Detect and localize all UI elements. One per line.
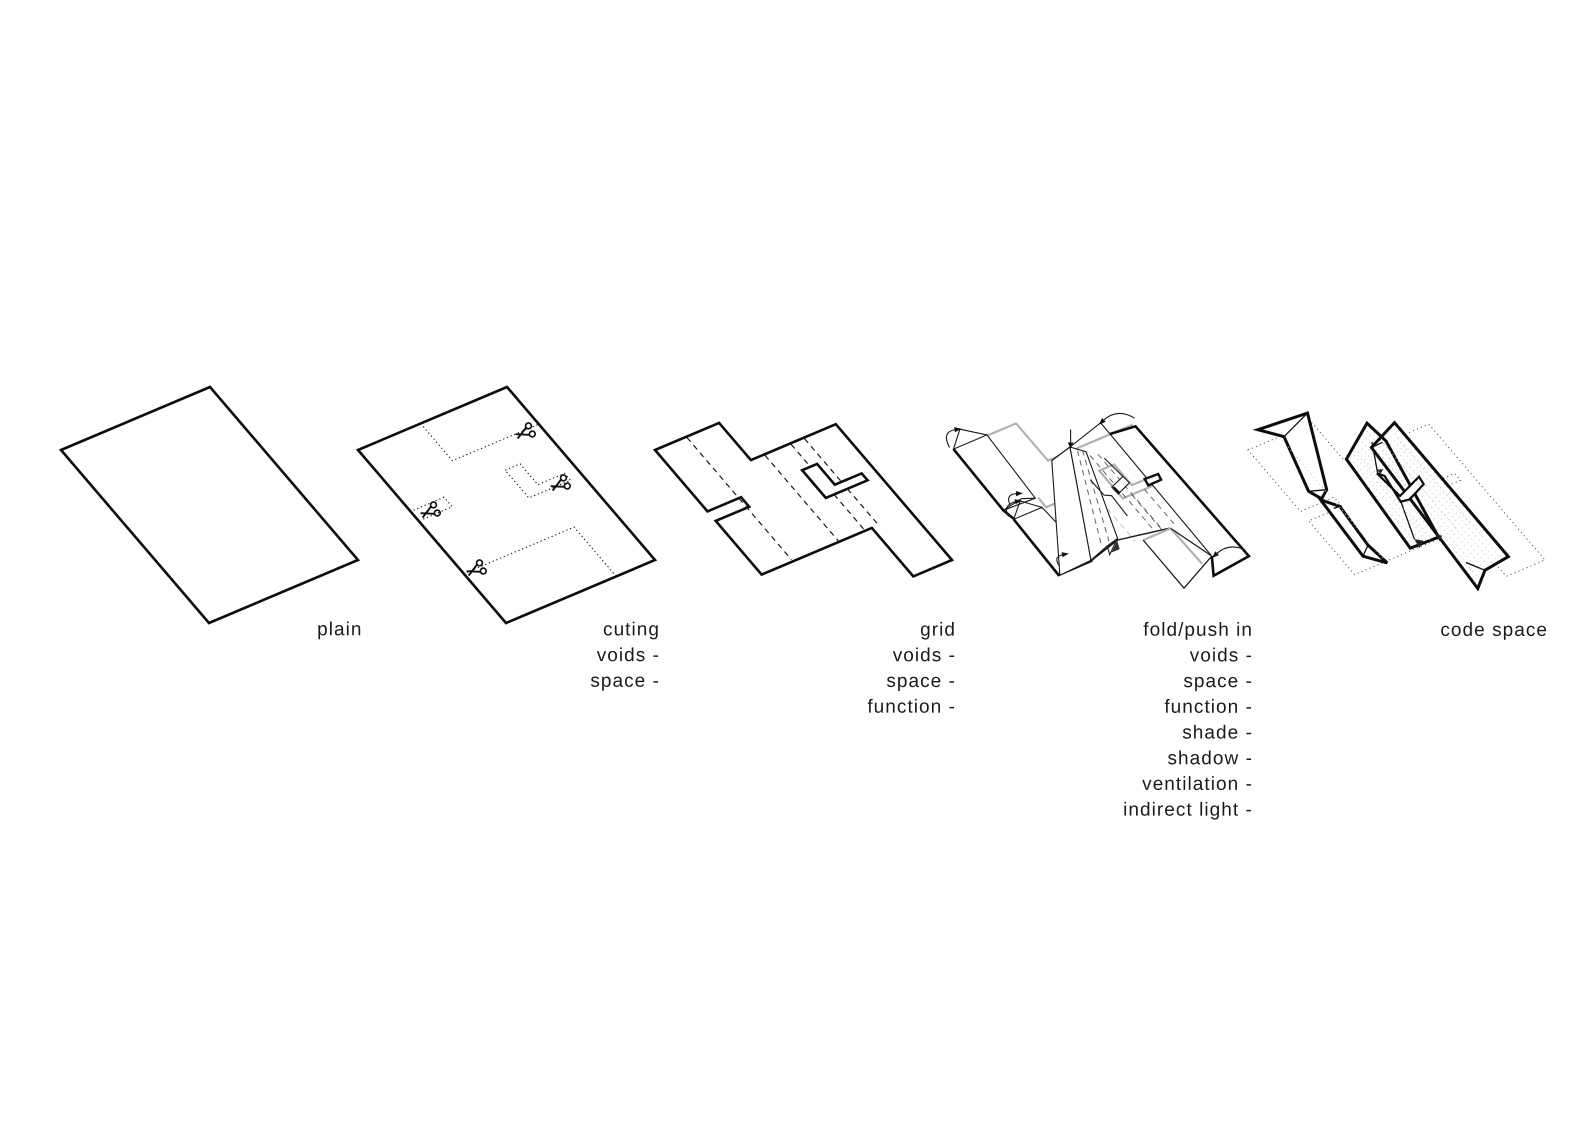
svg-text:voids -: voids - — [597, 645, 660, 666]
svg-text:space -: space - — [1183, 671, 1253, 692]
svg-text:plain: plain — [317, 619, 362, 640]
svg-text:shadow -: shadow - — [1167, 748, 1253, 769]
svg-text:cuting: cuting — [603, 619, 660, 640]
svg-text:indirect light -: indirect light - — [1123, 800, 1253, 821]
svg-text:fold/push in: fold/push in — [1143, 620, 1253, 641]
svg-text:voids -: voids - — [893, 645, 956, 666]
svg-text:function -: function - — [867, 697, 956, 718]
svg-text:function -: function - — [1164, 697, 1253, 718]
svg-text:voids -: voids - — [1190, 645, 1253, 666]
svg-text:ventilation -: ventilation - — [1142, 774, 1253, 795]
svg-text:space -: space - — [590, 671, 660, 692]
svg-text:shade -: shade - — [1182, 723, 1253, 744]
svg-text:code space: code space — [1440, 620, 1548, 641]
svg-text:space -: space - — [886, 671, 956, 692]
svg-text:grid: grid — [920, 620, 956, 641]
